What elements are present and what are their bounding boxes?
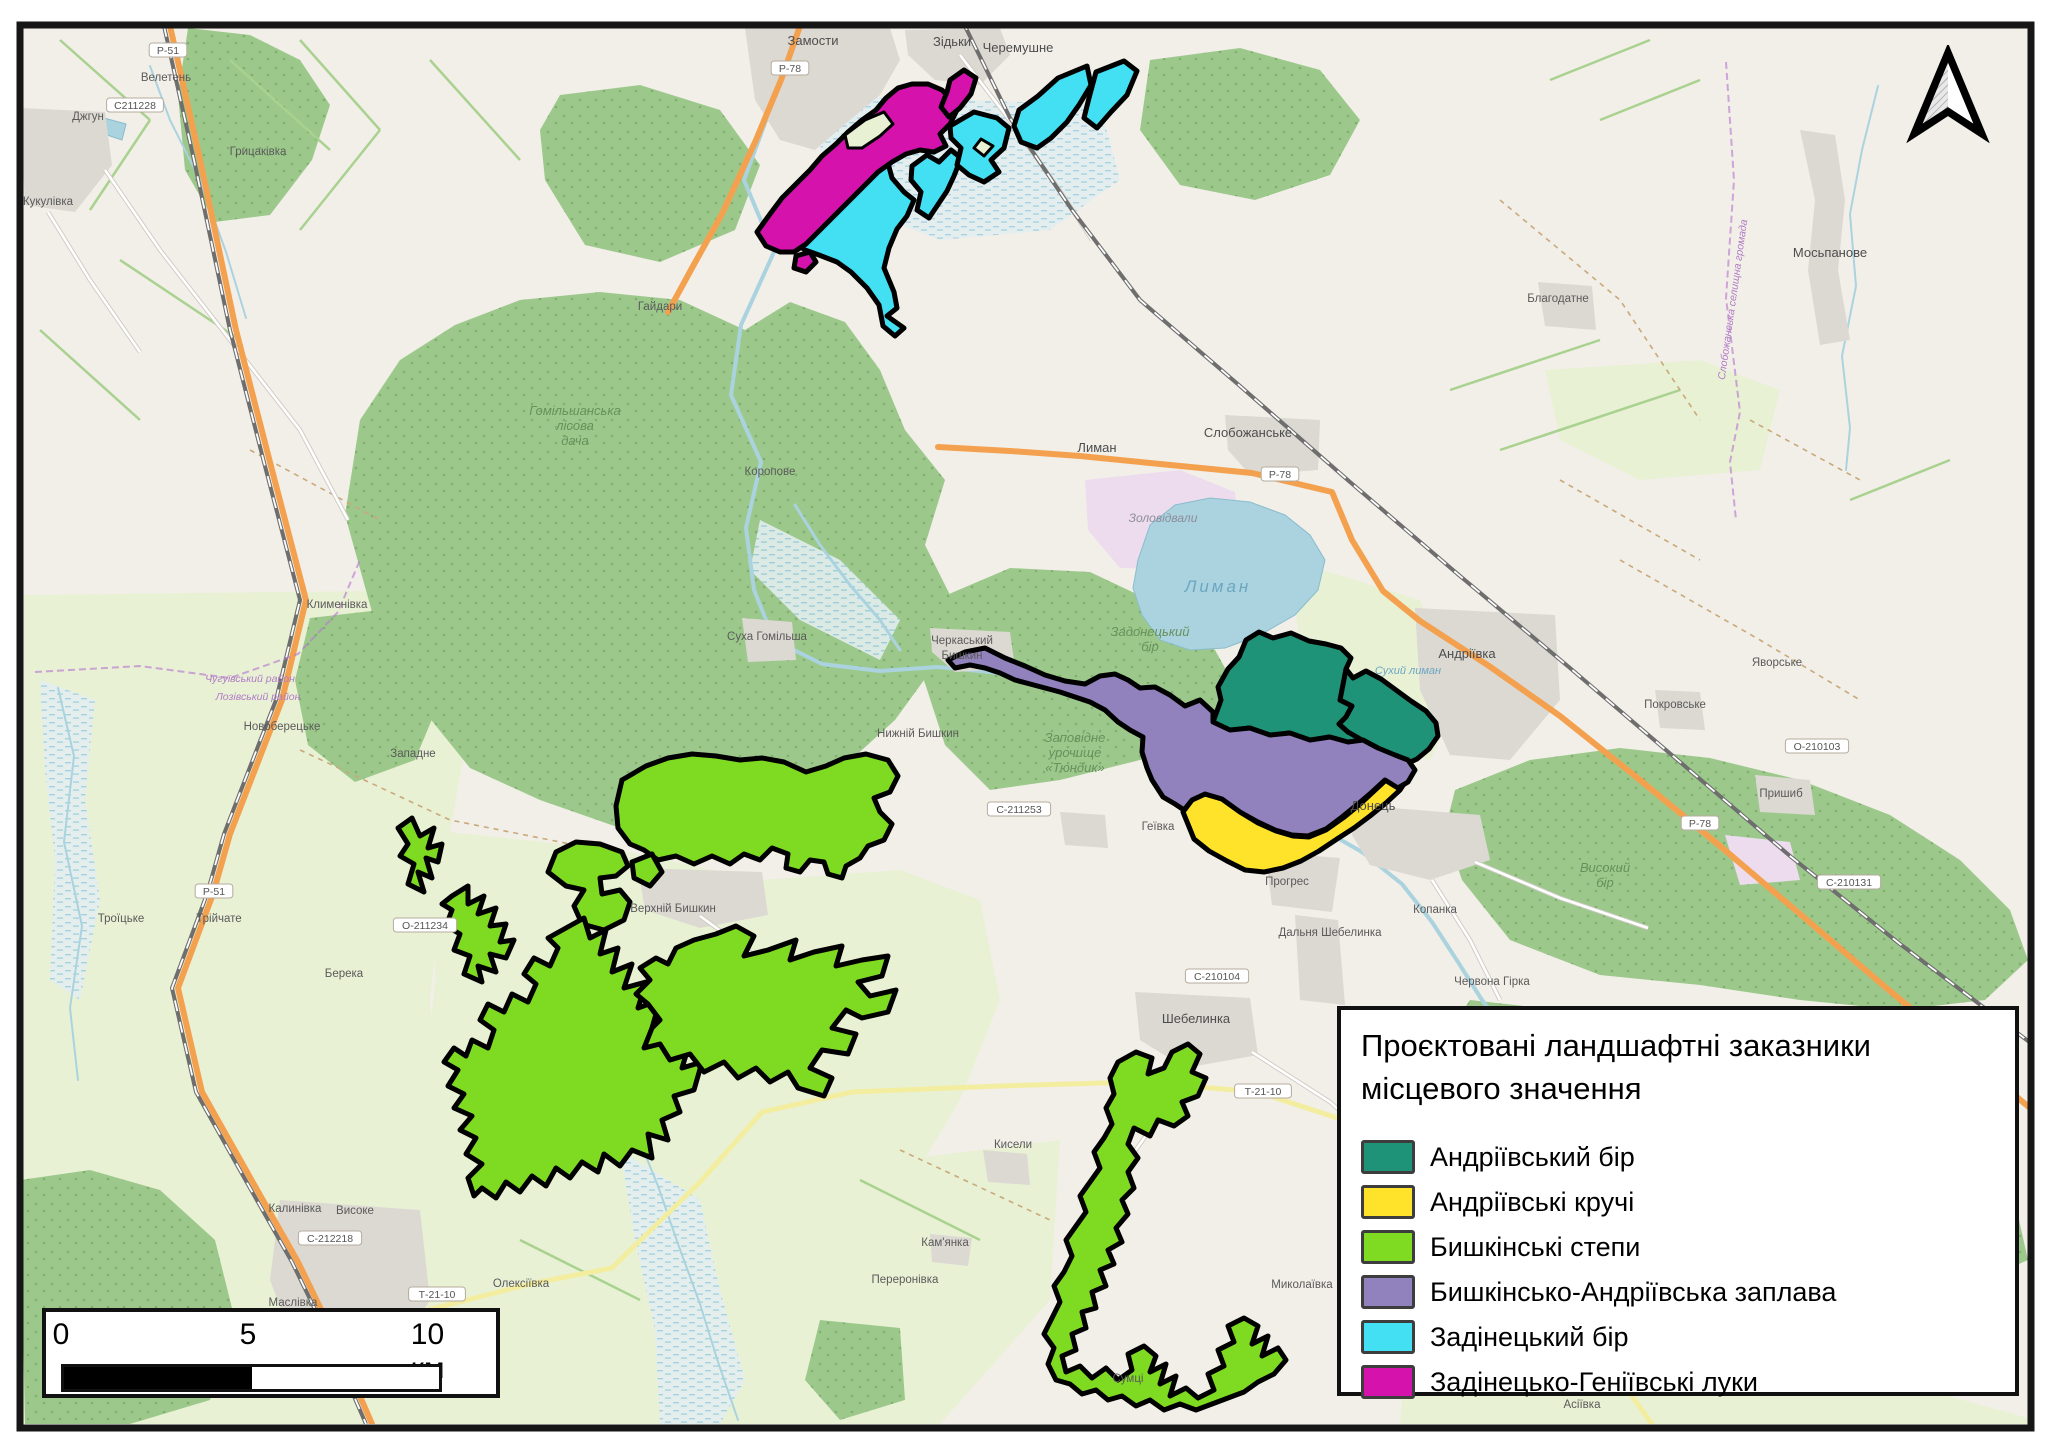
map-label-town-sm: Кам'янка xyxy=(921,1237,969,1249)
map-label-admin: Лозівський район xyxy=(215,691,301,703)
scalebar-label-5: 5 xyxy=(240,1318,257,1352)
legend-label-byshkinski-stepy: Бишкінські степи xyxy=(1430,1232,1640,1263)
map-label-town-sm: Коропове xyxy=(745,466,796,478)
legend-swatch-zadinetskyi-bir xyxy=(1361,1320,1415,1354)
map-label-town-sm: Покровське xyxy=(1644,699,1706,711)
road-shield: Р-51 xyxy=(195,884,233,898)
road-shield: С-212218 xyxy=(298,1231,361,1245)
map-label-town: Слобожанське xyxy=(1204,425,1292,440)
road-shield-label: О-210103 xyxy=(1794,741,1841,753)
legend-swatch-andriivski-kruchi xyxy=(1361,1185,1415,1219)
map-label-town-sm: Кукулівка xyxy=(23,196,74,208)
road-shield: С211228 xyxy=(107,98,164,112)
scalebar-label-0: 0 xyxy=(53,1318,70,1352)
map-label-town-sm: Переронівка xyxy=(872,1274,940,1286)
map-label-town-sm: Сумці xyxy=(1113,1373,1144,1385)
legend: Проєктовані ландшафтні заказники місцево… xyxy=(1337,1006,2019,1396)
scalebar: 0 5 10 км xyxy=(42,1308,500,1398)
map-label-town-sm: Суха Гомільша xyxy=(727,631,808,643)
north-arrow xyxy=(1906,45,1990,143)
map-label-town-sm: Червона Гірка xyxy=(1454,976,1530,988)
map-label-town: Замости xyxy=(788,33,839,48)
map-label-town: Шебелинка xyxy=(1162,1011,1231,1026)
map-label-water-sm: Сухий лиман xyxy=(1375,665,1441,677)
map-label-town-sm: Клименівка xyxy=(307,599,368,611)
map-label-town-sm: Високе xyxy=(336,1205,374,1217)
road-shield-label: Т-21-10 xyxy=(1245,1086,1282,1098)
map-label-town-sm: Геївка xyxy=(1142,821,1175,833)
legend-item-zadinetsko-heniivski-luky: Задінецько-Геніївські луки xyxy=(1361,1360,1995,1405)
legend-item-andriivski-kruchi: Андріївські кручі xyxy=(1361,1180,1995,1225)
legend-swatch-andriivskyi-bir xyxy=(1361,1140,1415,1174)
road-shield-label: О-211234 xyxy=(402,920,448,932)
road-shield-label: Р-78 xyxy=(1689,818,1711,830)
legend-label-zadinetskyi-bir: Задінецький бір xyxy=(1430,1322,1629,1353)
map-label-town-sm: Калинівка xyxy=(269,1203,323,1215)
map-label-admin: Чугуївський район xyxy=(205,673,295,685)
map-label-town-sm: Олексіївка xyxy=(493,1278,550,1290)
legend-item-byshkinski-stepy: Бишкінські степи xyxy=(1361,1225,1995,1270)
map-label-town-sm: Велетень xyxy=(141,72,191,84)
urban-area xyxy=(1538,282,1596,330)
legend-title-line1: Проєктовані ландшафтні заказники xyxy=(1361,1024,1995,1067)
map-label-town-sm: Яворське xyxy=(1752,657,1802,669)
map-label-town: Донець xyxy=(1351,798,1396,813)
reserve-polygon-byshkinski-stepy xyxy=(616,754,898,878)
legend-items: Андріївський бірАндріївські кручіБишкінс… xyxy=(1361,1135,1995,1405)
map-label-area: Золовідвали xyxy=(1129,511,1198,525)
road-shield: С-210104 xyxy=(1185,969,1248,983)
map-label-town-sm: Верхній Бишкин xyxy=(630,903,716,915)
map-label-town-sm: Благодатне xyxy=(1527,293,1588,305)
road-shield-label: С-210104 xyxy=(1194,971,1240,983)
road-shield-label: Р-51 xyxy=(157,45,179,57)
legend-label-byshkinsko-andriivska-zaplava: Бишкінсько-Андріївська заплава xyxy=(1430,1277,1836,1308)
scalebar-bar xyxy=(61,1364,442,1392)
map-label-town-sm: Трійчате xyxy=(196,913,241,925)
urban-area xyxy=(983,1150,1030,1185)
road-shield: О-210103 xyxy=(1785,739,1848,753)
map-label-town-sm: Джгун xyxy=(72,111,104,123)
road-shield: О-211234 xyxy=(393,918,456,932)
map-label-town-sm: Копанка xyxy=(1413,904,1457,916)
road-shield: Т-21-10 xyxy=(409,1287,466,1301)
legend-label-andriivski-kruchi: Андріївські кручі xyxy=(1430,1187,1634,1218)
road-shield-label: С-212218 xyxy=(307,1233,353,1245)
map-label-town-sm: Кисели xyxy=(994,1139,1032,1151)
map-label-town: Зідьки xyxy=(933,34,971,49)
map-label-lake: Лиман xyxy=(1184,577,1252,596)
road-shield-label: С211228 xyxy=(114,100,156,112)
map-label-town-sm: Дальня Шебелинка xyxy=(1278,927,1382,939)
legend-label-zadinetsko-heniivski-luky: Задінецько-Геніївські луки xyxy=(1430,1367,1758,1398)
road-shield-label: Р-51 xyxy=(203,886,225,898)
legend-title: Проєктовані ландшафтні заказники місцево… xyxy=(1361,1024,1995,1111)
legend-item-zadinetskyi-bir: Задінецький бір xyxy=(1361,1315,1995,1360)
legend-item-andriivskyi-bir: Андріївський бір xyxy=(1361,1135,1995,1180)
legend-title-line2: місцевого значення xyxy=(1361,1067,1995,1110)
map-label-town-sm: Новоберецьке xyxy=(244,721,321,733)
legend-label-andriivskyi-bir: Андріївський бір xyxy=(1430,1142,1635,1173)
map-label-town-sm: Троїцьке xyxy=(98,913,145,925)
map-label-town-sm: Нижній Бишкин xyxy=(877,728,959,740)
legend-swatch-byshkinsko-andriivska-zaplava xyxy=(1361,1275,1415,1309)
road-shield: С-211253 xyxy=(987,802,1050,816)
map-label-town-sm: Прогрес xyxy=(1265,876,1309,888)
map-label-town-sm: Пришиб xyxy=(1759,788,1803,800)
road-shield: Р-51 xyxy=(149,43,187,57)
map-label-forest: Заповіднеурочище«Тюндик» xyxy=(1045,730,1106,775)
legend-item-byshkinsko-andriivska-zaplava: Бишкінсько-Андріївська заплава xyxy=(1361,1270,1995,1315)
road-shield-label: Р-78 xyxy=(1269,469,1291,481)
road-shield: Т-21-10 xyxy=(1235,1084,1292,1098)
urban-area xyxy=(1060,812,1108,848)
road-shield-label: Т-21-10 xyxy=(419,1289,456,1301)
legend-swatch-byshkinski-stepy xyxy=(1361,1230,1415,1264)
road-shield: Р-78 xyxy=(771,61,809,75)
map-label-town: Лиман xyxy=(1077,440,1116,455)
scalebar-bar-filled-half xyxy=(64,1367,252,1389)
road-shield-label: С-210131 xyxy=(1826,877,1872,889)
map-label-town-sm: Миколаївка xyxy=(1271,1279,1333,1291)
map-label-town: Андріївка xyxy=(1438,646,1496,661)
map-label-town: Черемушне xyxy=(983,40,1054,55)
map-figure: ЗамостиЗідькиЧеремушнеВелетеньДжгунГрица… xyxy=(0,0,2048,1448)
legend-swatch-zadinetsko-heniivski-luky xyxy=(1361,1365,1415,1399)
road-shield-label: С-211253 xyxy=(996,804,1041,816)
road-shield: Р-78 xyxy=(1261,467,1299,481)
map-label-town-sm: Гайдари xyxy=(638,301,682,313)
road-shield: С-210131 xyxy=(1817,875,1880,889)
map-label-town: Мосьпанове xyxy=(1793,245,1867,260)
road-shield-label: Р-78 xyxy=(779,63,801,75)
map-label-town-sm: Берека xyxy=(325,968,364,980)
road-shield: Р-78 xyxy=(1681,816,1719,830)
map-label-town-sm: Западне xyxy=(390,748,435,760)
map-label-town-sm: Грицаківка xyxy=(230,146,287,158)
